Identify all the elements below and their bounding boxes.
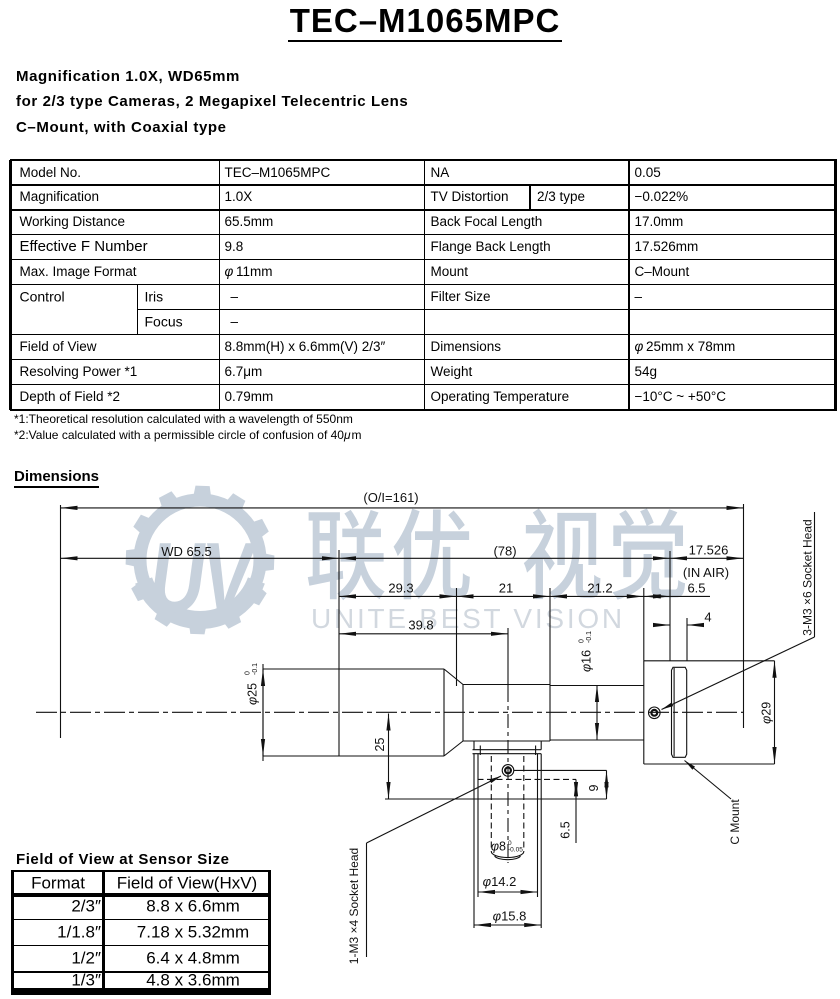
svg-text:21.2: 21.2 bbox=[587, 581, 612, 596]
svg-text:φ15.8: φ15.8 bbox=[493, 909, 527, 924]
svg-text:UNITE BEST VISION: UNITE BEST VISION bbox=[311, 603, 625, 634]
svg-text:17.526: 17.526 bbox=[689, 543, 729, 558]
svg-text:1-M3 ×4 Socket Head: 1-M3 ×4 Socket Head bbox=[347, 848, 361, 964]
svg-text:(O/I=161): (O/I=161) bbox=[363, 490, 418, 505]
svg-text:φ29: φ29 bbox=[760, 702, 774, 724]
svg-text:9: 9 bbox=[587, 784, 601, 791]
svg-text:-0.1: -0.1 bbox=[586, 631, 593, 643]
svg-text:3-M3 ×6 Socket Head: 3-M3 ×6 Socket Head bbox=[801, 519, 815, 635]
svg-text:φ14.2: φ14.2 bbox=[483, 874, 517, 889]
svg-text:39.8: 39.8 bbox=[408, 618, 433, 633]
svg-text:φ16: φ16 bbox=[580, 650, 594, 672]
svg-text:-0.05: -0.05 bbox=[508, 847, 523, 854]
svg-text:(78): (78) bbox=[493, 544, 516, 559]
svg-text:4: 4 bbox=[704, 610, 711, 625]
svg-text:21: 21 bbox=[499, 581, 513, 596]
svg-text:0: 0 bbox=[579, 639, 586, 643]
svg-text:25: 25 bbox=[373, 738, 387, 752]
svg-text:φ8: φ8 bbox=[491, 840, 506, 854]
svg-text:C Mount: C Mount bbox=[728, 799, 742, 845]
svg-text:6.5: 6.5 bbox=[687, 581, 705, 596]
svg-text:6.5: 6.5 bbox=[559, 821, 573, 838]
svg-text:29.3: 29.3 bbox=[388, 581, 413, 596]
svg-text:(IN AIR): (IN AIR) bbox=[683, 565, 729, 580]
